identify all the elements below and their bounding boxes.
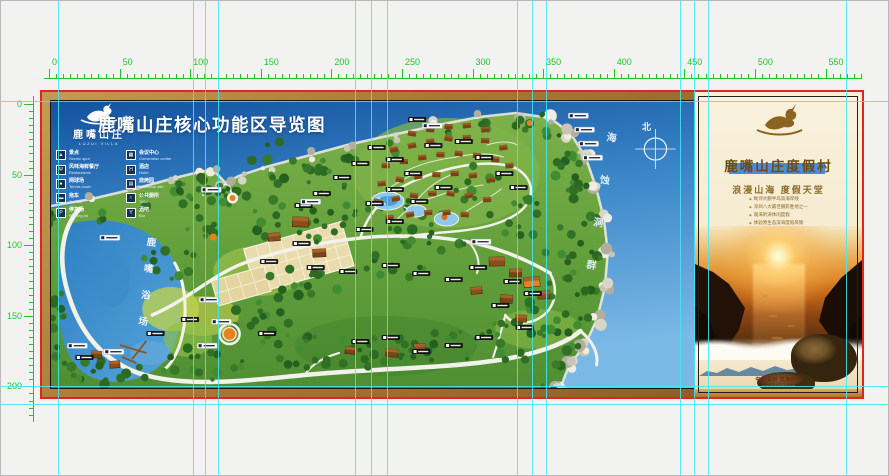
ruler-tick xyxy=(593,74,594,78)
ruler-tick xyxy=(268,74,269,78)
ruler-tick xyxy=(233,74,234,78)
ruler-tick xyxy=(564,74,565,78)
ruler-tick xyxy=(713,74,714,78)
hotel-icon: H xyxy=(126,165,136,175)
ruler-number: 350 xyxy=(546,57,561,67)
ruler-tick xyxy=(642,74,643,78)
ruler-tick xyxy=(338,74,339,78)
ruler-tick xyxy=(29,266,33,267)
map-legend: ▲景点Scenic spot Ψ风味海鲜餐厅Restaurants ●网球场Te… xyxy=(56,148,190,220)
ruler-tick xyxy=(63,74,64,78)
ruler-tick xyxy=(571,74,572,78)
horizontal-ruler[interactable] xyxy=(44,78,862,79)
ruler-tick xyxy=(374,74,375,78)
ruler-number: 50 xyxy=(123,57,133,67)
ruler-number: 50 xyxy=(3,170,22,180)
ruler-tick xyxy=(169,74,170,78)
ruler-tick xyxy=(289,74,290,78)
ruler-tick xyxy=(473,69,474,78)
ruler-tick xyxy=(324,74,325,78)
ruler-tick xyxy=(833,74,834,78)
ruler-tick xyxy=(508,74,509,78)
ruler-tick xyxy=(543,69,544,78)
sunset-photo xyxy=(695,226,862,351)
resort-bullets: ◆毗邻大鹏半岛滨海岸线 ◆深圳八大最佳摄影胜地之一 ◆观海听涛休闲度假 ◆体验原… xyxy=(749,195,808,227)
ruler-tick xyxy=(29,288,33,289)
ruler-tick xyxy=(77,74,78,78)
ruler-tick xyxy=(29,217,33,218)
map-title: 鹿嘴山庄核心功能区导览图 xyxy=(98,112,326,137)
ruler-tick xyxy=(29,365,33,366)
ruler-tick xyxy=(677,74,678,78)
ruler-tick xyxy=(614,69,615,78)
ruler-tick xyxy=(24,104,33,105)
ruler-tick xyxy=(29,302,33,303)
ruler-tick xyxy=(550,74,551,78)
ruler-tick xyxy=(578,74,579,78)
ruler-tick xyxy=(29,330,33,331)
ruler-tick xyxy=(176,74,177,78)
ruler-tick xyxy=(155,74,156,78)
ruler-tick xyxy=(727,74,728,78)
ruler-tick xyxy=(29,309,33,310)
ruler-tick xyxy=(29,168,33,169)
ruler-tick xyxy=(29,408,33,409)
ruler-tick xyxy=(487,74,488,78)
ruler-tick xyxy=(607,74,608,78)
ruler-tick xyxy=(755,69,756,78)
ruler-tick xyxy=(29,231,33,232)
legend-item: ▦会议中心Convention center xyxy=(126,148,190,162)
ruler-tick xyxy=(106,74,107,78)
ruler-tick xyxy=(120,69,121,78)
ruler-tick xyxy=(600,74,601,78)
bullet-diamond-icon: ◆ xyxy=(749,197,752,201)
ruler-tick xyxy=(29,238,33,239)
ruler-tick xyxy=(226,74,227,78)
ruler-tick xyxy=(720,74,721,78)
resort-panel: 鹿嘴山庄度假村 浪漫山海 度假天堂 ◆毗邻大鹏半岛滨海岸线 ◆深圳八大最佳摄影胜… xyxy=(695,92,862,397)
ruler-tick xyxy=(458,74,459,78)
ruler-tick xyxy=(211,74,212,78)
ruler-tick xyxy=(134,74,135,78)
legend-item: H酒店Hotel xyxy=(126,162,190,176)
ruler-tick xyxy=(282,74,283,78)
ruler-number: 300 xyxy=(476,57,491,67)
resort-title: 鹿嘴山庄度假村 xyxy=(695,155,862,175)
ruler-tick xyxy=(240,74,241,78)
ruler-tick xyxy=(24,245,33,246)
ruler-tick xyxy=(684,69,685,78)
ruler-tick xyxy=(190,69,191,78)
ruler-tick xyxy=(303,74,304,78)
ruler-tick xyxy=(423,74,424,78)
ruler-tick xyxy=(346,74,347,78)
ruler-tick xyxy=(480,74,481,78)
barbecue-icon: ▤ xyxy=(126,179,136,189)
ruler-tick xyxy=(557,74,558,78)
ruler-tick xyxy=(670,74,671,78)
ruler-tick xyxy=(29,132,33,133)
bullet-diamond-icon: ◆ xyxy=(749,205,752,209)
ruler-tick xyxy=(706,74,707,78)
ruler-tick xyxy=(310,74,311,78)
ruler-tick xyxy=(734,74,735,78)
ruler-number: 200 xyxy=(334,57,349,67)
ruler-tick xyxy=(515,74,516,78)
ruler-tick xyxy=(29,189,33,190)
ruler-number: 150 xyxy=(3,311,22,321)
ruler-tick xyxy=(247,74,248,78)
ruler-tick xyxy=(854,74,855,78)
ruler-tick xyxy=(29,146,33,147)
legend-item: P停车场Parking lot xyxy=(56,206,120,220)
legend-item: ▬拖车Towbar xyxy=(56,191,120,205)
ruler-tick xyxy=(254,74,255,78)
ruler-tick xyxy=(29,281,33,282)
resort-deer-logo-icon xyxy=(753,104,805,138)
ruler-tick xyxy=(635,74,636,78)
ruler-tick xyxy=(430,74,431,78)
ruler-tick xyxy=(29,153,33,154)
ruler-tick xyxy=(353,74,354,78)
ruler-tick xyxy=(29,139,33,140)
ruler-tick xyxy=(29,210,33,211)
ruler-tick xyxy=(70,74,71,78)
ruler-tick xyxy=(29,323,33,324)
map-wooden-frame: 鹿嘴山庄 LUZUI VILLA 鹿嘴山庄核心功能区导览图 ▲景点Scenic … xyxy=(42,92,695,397)
ruler-tick xyxy=(444,74,445,78)
ruler-tick xyxy=(261,69,262,78)
ruler-tick xyxy=(29,273,33,274)
ruler-number: 250 xyxy=(405,57,420,67)
bullet-diamond-icon: ◆ xyxy=(749,221,752,225)
cliff-silhouettes xyxy=(695,226,862,351)
ruler-tick xyxy=(29,295,33,296)
ruler-tick xyxy=(840,74,841,78)
ruler-tick xyxy=(769,74,770,78)
ruler-tick xyxy=(127,74,128,78)
guide-horizontal[interactable] xyxy=(1,101,889,102)
ruler-tick xyxy=(29,182,33,183)
legend-item: Ψ风味海鲜餐厅Restaurants xyxy=(56,162,120,176)
ruler-tick xyxy=(29,203,33,204)
guide-horizontal[interactable] xyxy=(1,386,889,387)
ruler-tick xyxy=(29,259,33,260)
ruler-tick xyxy=(522,74,523,78)
ruler-tick xyxy=(776,74,777,78)
bullet-text: 毗邻大鹏半岛滨海岸线 xyxy=(754,196,799,201)
ruler-tick xyxy=(49,69,50,78)
ruler-tick xyxy=(29,337,33,338)
ruler-number: 150 xyxy=(264,57,279,67)
ruler-tick xyxy=(395,74,396,78)
ruler-tick xyxy=(663,74,664,78)
ruler-tick xyxy=(162,74,163,78)
ruler-number: 0 xyxy=(52,57,57,67)
ruler-tick xyxy=(141,74,142,78)
ruler-tick xyxy=(409,74,410,78)
ruler-tick xyxy=(91,74,92,78)
ruler-tick xyxy=(861,74,862,78)
legend-item: ♀公共厕所Toilet xyxy=(126,191,190,205)
ruler-tick xyxy=(296,74,297,78)
ruler-tick xyxy=(29,372,33,373)
ruler-tick xyxy=(367,74,368,78)
ruler-tick xyxy=(649,74,650,78)
legend-item: ▤烧烤园Barbecue site xyxy=(126,177,190,191)
ruler-tick xyxy=(437,74,438,78)
ruler-tick xyxy=(24,175,33,176)
ruler-tick xyxy=(29,111,33,112)
compass-north-label: 北 xyxy=(642,120,651,133)
ruler-tick xyxy=(84,74,85,78)
ruler-tick xyxy=(797,74,798,78)
ruler-tick xyxy=(748,74,749,78)
ruler-tick xyxy=(698,74,699,78)
ruler-tick xyxy=(29,118,33,119)
legend-item: Y酒吧Bar xyxy=(126,206,190,220)
ruler-tick xyxy=(113,74,114,78)
bullet-diamond-icon: ◆ xyxy=(749,213,752,217)
ruler-tick xyxy=(783,74,784,78)
toilet-icon: ♀ xyxy=(126,193,136,203)
ruler-number: 400 xyxy=(617,57,632,67)
ruler-tick xyxy=(811,74,812,78)
ruler-tick xyxy=(275,74,276,78)
map-area: 鹿嘴山庄 LUZUI VILLA 鹿嘴山庄核心功能区导览图 ▲景点Scenic … xyxy=(51,101,695,388)
ruler-tick xyxy=(24,316,33,317)
ruler-number: 550 xyxy=(828,57,843,67)
ruler-tick xyxy=(790,74,791,78)
ruler-tick xyxy=(29,344,33,345)
ruler-tick xyxy=(501,74,502,78)
legend-item: ▲景点Scenic spot xyxy=(56,148,120,162)
ruler-tick xyxy=(360,74,361,78)
ruler-tick xyxy=(183,74,184,78)
ruler-tick xyxy=(818,74,819,78)
ruler-tick xyxy=(29,415,33,416)
ruler-tick xyxy=(29,358,33,359)
ruler-tick xyxy=(656,74,657,78)
ruler-tick xyxy=(494,74,495,78)
ruler-tick xyxy=(29,351,33,352)
ruler-tick xyxy=(98,74,99,78)
bullet-text: 体验原生态滨海度假风情 xyxy=(754,220,804,225)
bullet-text: 深圳八大最佳摄影胜地之一 xyxy=(754,204,808,209)
ruler-tick xyxy=(416,74,417,78)
ruler-tick xyxy=(197,74,198,78)
ruler-tick xyxy=(317,74,318,78)
ruler-tick xyxy=(451,74,452,78)
ruler-tick xyxy=(826,69,827,78)
ruler-tick xyxy=(29,252,33,253)
ruler-number: 500 xyxy=(758,57,773,67)
ruler-tick xyxy=(741,74,742,78)
convention-center-icon: ▦ xyxy=(126,150,136,160)
ruler-tick xyxy=(29,379,33,380)
guide-horizontal[interactable] xyxy=(1,404,889,405)
ruler-tick xyxy=(381,74,382,78)
ruler-tick xyxy=(29,401,33,402)
design-workspace: 0501001502002503003504004505005500501001… xyxy=(0,0,889,476)
poster-page[interactable]: 鹿嘴山庄 LUZUI VILLA 鹿嘴山庄核心功能区导览图 ▲景点Scenic … xyxy=(40,90,864,399)
ruler-tick xyxy=(628,74,629,78)
vertical-ruler[interactable] xyxy=(33,96,34,422)
ruler-tick xyxy=(529,74,530,78)
ruler-tick xyxy=(331,69,332,78)
logo-en-text: LUZUI VILLA xyxy=(56,141,142,146)
legend-item: ●网球场Tennis court xyxy=(56,177,120,191)
footer-location: 中国深圳·滨海度假 xyxy=(695,376,862,383)
bullet-text: 观海听涛休闲度假 xyxy=(754,212,790,217)
ruler-tick xyxy=(56,74,57,78)
ruler-tick xyxy=(29,125,33,126)
ruler-tick xyxy=(466,74,467,78)
bar-icon: Y xyxy=(126,208,136,218)
ruler-tick xyxy=(536,74,537,78)
ruler-tick xyxy=(586,74,587,78)
ruler-tick xyxy=(29,393,33,394)
ruler-tick xyxy=(29,161,33,162)
ruler-tick xyxy=(29,196,33,197)
ruler-tick xyxy=(804,74,805,78)
ruler-tick xyxy=(621,74,622,78)
ruler-tick xyxy=(691,74,692,78)
ruler-tick xyxy=(148,74,149,78)
ruler-tick xyxy=(29,224,33,225)
ruler-number: 100 xyxy=(3,240,22,250)
ruler-tick xyxy=(402,69,403,78)
ruler-tick xyxy=(762,74,763,78)
panel-bottom-strip xyxy=(695,389,862,397)
